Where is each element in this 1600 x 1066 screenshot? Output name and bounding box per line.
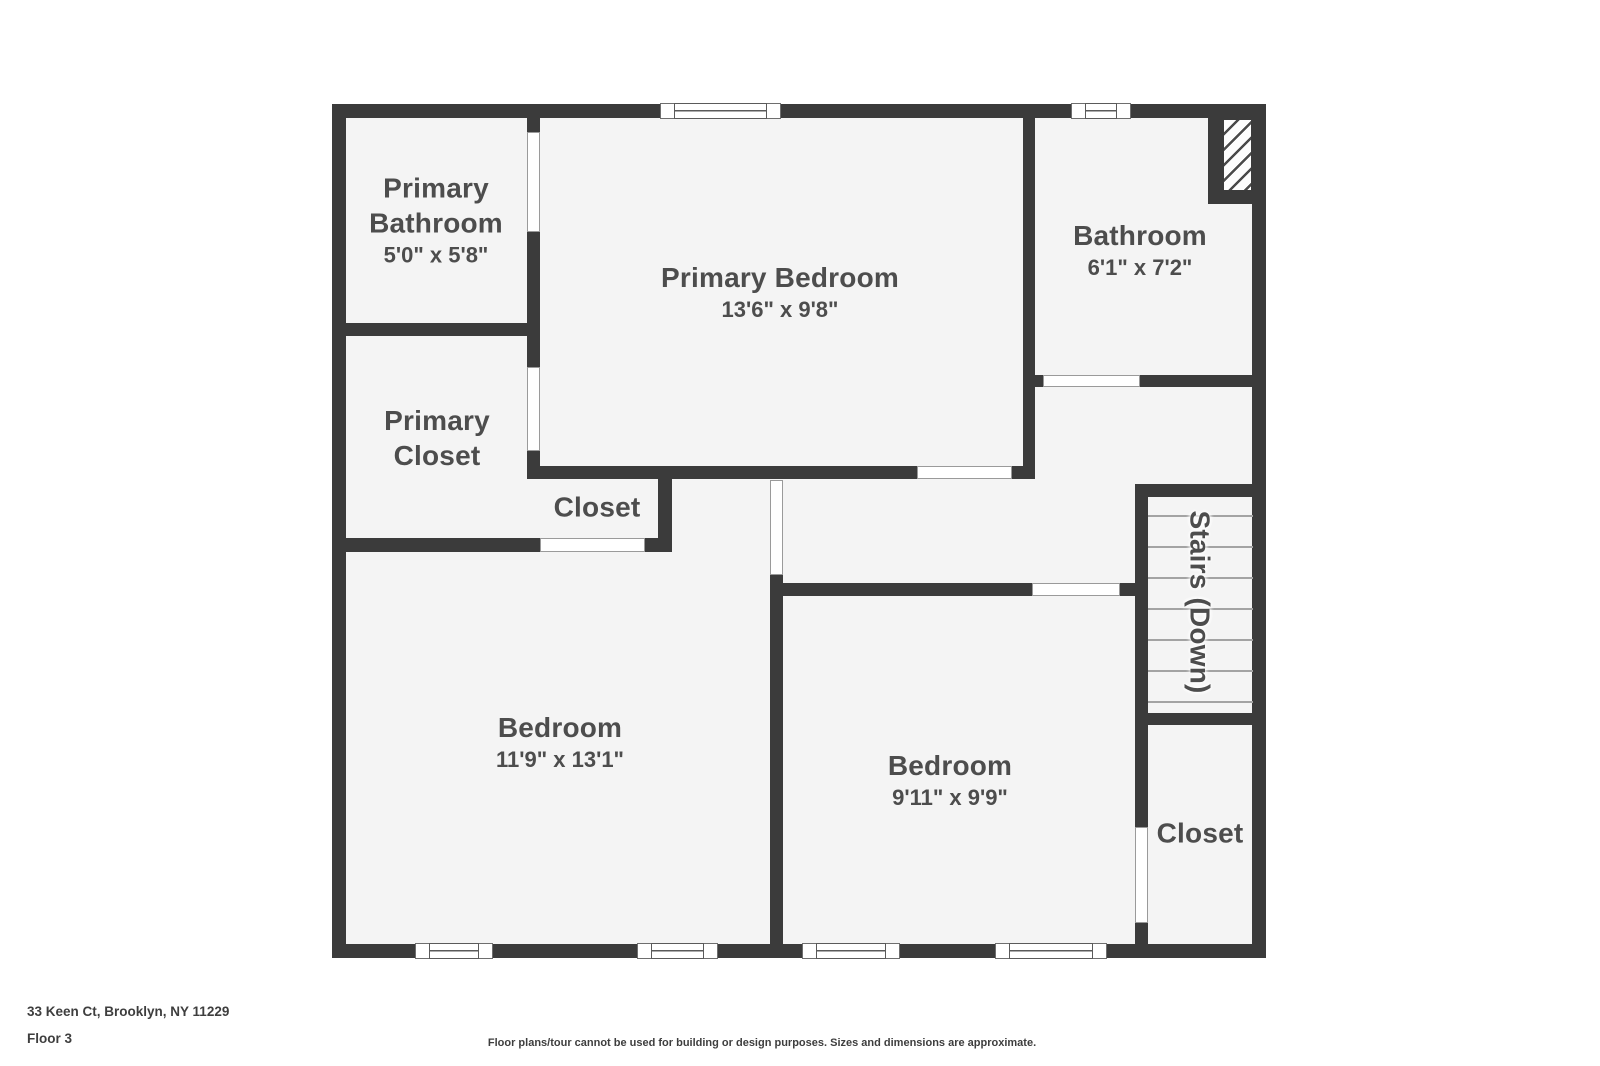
wall-segment	[1023, 118, 1035, 466]
wall-segment	[1208, 190, 1266, 204]
wall-segment	[645, 538, 672, 552]
wall-segment	[1135, 484, 1148, 827]
door-primary-bedroom	[917, 466, 1012, 479]
window-bedroom-right-2	[995, 943, 1107, 959]
room-dimensions: 11'9" x 13'1"	[496, 745, 624, 774]
stair-tread	[1148, 701, 1253, 703]
door-bathroom	[1043, 375, 1140, 387]
room-name: Bathroom	[369, 206, 503, 241]
window-bathroom	[1071, 103, 1131, 119]
room-name: Bathroom	[1073, 218, 1207, 253]
room-name: Closet	[384, 438, 490, 473]
floor-plan-canvas: PrimaryBathroom5'0" x 5'8"Primary Bedroo…	[0, 0, 1600, 1066]
room-label-hall-closet: Closet	[554, 490, 641, 525]
room-label-bedroom-right: Bedroom9'11" x 9'9"	[888, 748, 1012, 812]
wall-segment	[1208, 104, 1222, 190]
window-glass	[429, 943, 479, 959]
window-bedroom-left-2	[637, 943, 718, 959]
room-label-primary-closet: PrimaryCloset	[384, 403, 490, 473]
room-label-bottom-closet: Closet	[1157, 816, 1244, 851]
window-glass	[816, 943, 886, 959]
room-name: Closet	[554, 490, 641, 525]
room-dimensions: 9'11" x 9'9"	[888, 783, 1012, 812]
door-hall-closet	[540, 538, 645, 552]
footer-address: 33 Keen Ct, Brooklyn, NY 11229	[27, 1004, 229, 1019]
window-glass	[1009, 943, 1093, 959]
window-glass	[674, 103, 767, 119]
footer-disclaimer: Floor plans/tour cannot be used for buil…	[488, 1037, 1036, 1049]
room-name: Primary Bedroom	[661, 260, 899, 295]
wall-segment	[527, 232, 540, 367]
wall-segment	[783, 583, 1032, 596]
window-primary-bedroom	[660, 103, 781, 119]
wall-segment	[332, 323, 540, 336]
room-label-bedroom-left: Bedroom11'9" x 13'1"	[496, 710, 624, 774]
window-glass	[651, 943, 704, 959]
door-primary-bathroom	[527, 132, 540, 232]
wall-segment	[1137, 484, 1266, 497]
room-name: Closet	[1157, 816, 1244, 851]
room-dimensions: 13'6" x 9'8"	[661, 295, 899, 324]
wall-segment	[1252, 104, 1266, 958]
door-bedroom-left	[770, 480, 783, 575]
hatched-shaft	[1222, 118, 1253, 192]
room-name: Primary	[369, 171, 503, 206]
door-primary-closet	[527, 367, 540, 451]
room-name: Primary	[384, 403, 490, 438]
wall-segment	[332, 538, 540, 552]
room-dimensions: 5'0" x 5'8"	[369, 241, 503, 270]
room-name: Stairs (Down)	[1183, 510, 1218, 693]
room-name: Bedroom	[496, 710, 624, 745]
room-label-stairs-down: Stairs (Down)	[1183, 510, 1218, 693]
wall-segment	[1140, 375, 1266, 387]
wall-segment	[527, 466, 917, 479]
room-name: Bedroom	[888, 748, 1012, 783]
room-label-bathroom: Bathroom6'1" x 7'2"	[1073, 218, 1207, 282]
room-label-primary-bathroom: PrimaryBathroom5'0" x 5'8"	[369, 171, 503, 270]
window-glass	[1085, 103, 1117, 119]
door-bottom-closet	[1135, 827, 1148, 923]
footer-floor-label: Floor 3	[27, 1031, 72, 1046]
window-bedroom-left-1	[415, 943, 493, 959]
door-bedroom-right	[1032, 583, 1120, 596]
window-bedroom-right-1	[802, 943, 900, 959]
wall-segment	[1035, 375, 1043, 387]
wall-segment	[1135, 923, 1148, 944]
wall-segment	[332, 104, 346, 958]
wall-segment	[1012, 466, 1035, 479]
wall-segment	[527, 118, 540, 132]
wall-segment	[770, 575, 783, 944]
wall-segment	[1137, 713, 1266, 725]
room-dimensions: 6'1" x 7'2"	[1073, 253, 1207, 282]
room-label-primary-bedroom: Primary Bedroom13'6" x 9'8"	[661, 260, 899, 324]
